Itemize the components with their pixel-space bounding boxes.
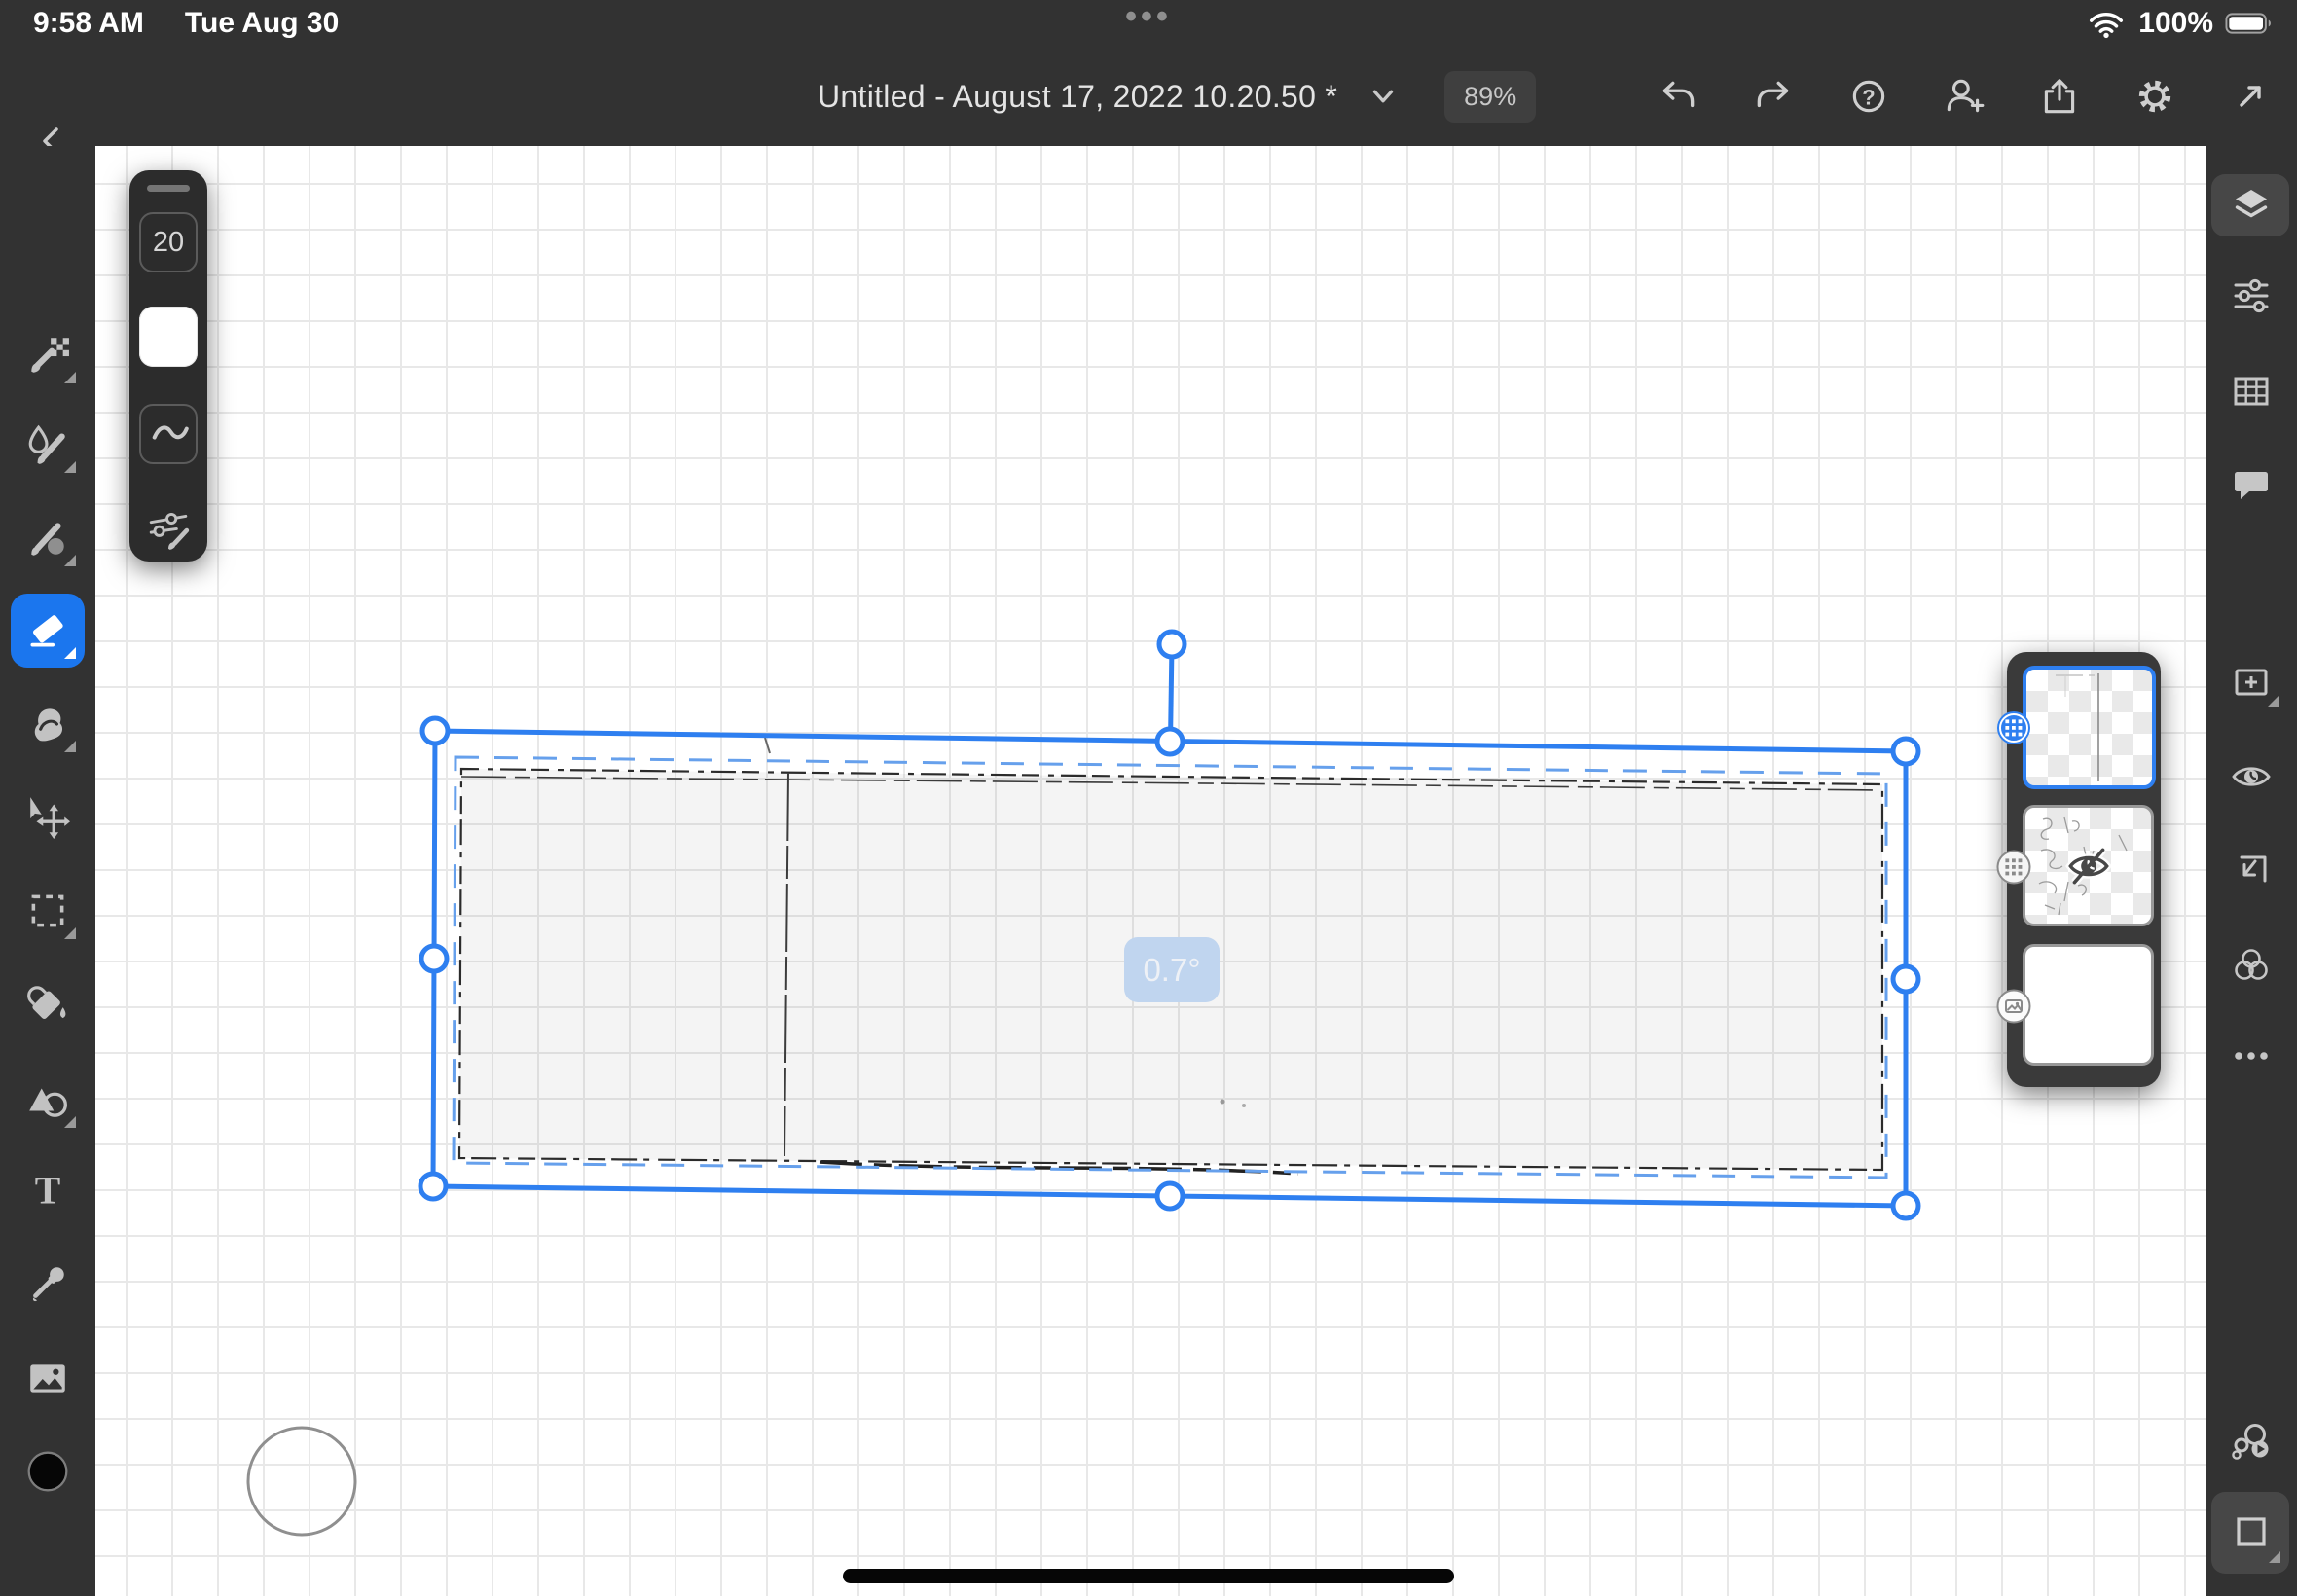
- color-well[interactable]: [11, 1434, 85, 1508]
- flyout-indicator: [64, 741, 76, 752]
- sidebar-item-adjustments[interactable]: [2230, 274, 2273, 317]
- ellipsis-icon: [2230, 1034, 2273, 1077]
- handle-top-left[interactable]: [422, 718, 448, 744]
- document-title: Untitled - August 17, 2022 10.20.50 *: [818, 79, 1337, 115]
- sidebar-item-timelapse[interactable]: [2230, 1420, 2273, 1463]
- help-button[interactable]: ?: [1841, 69, 1896, 124]
- gear-icon: [2133, 74, 2177, 119]
- settings-button[interactable]: [2128, 69, 2182, 124]
- tool-eraser[interactable]: [11, 594, 85, 668]
- background-layer-thumbnail[interactable]: [2023, 944, 2154, 1066]
- tool-options-panel: 20: [129, 170, 207, 562]
- handle-left-mid[interactable]: [421, 946, 447, 971]
- tool-smudge[interactable]: [11, 687, 85, 761]
- tool-sidebar: T: [0, 146, 95, 1596]
- brush-cursor: [248, 1428, 355, 1535]
- status-bar: 9:58 AM Tue Aug 30 ••• 100%: [0, 0, 2297, 47]
- flyout-indicator: [2267, 696, 2279, 707]
- sidebar-item-merge-down[interactable]: [2230, 850, 2273, 892]
- tool-live-brush[interactable]: [11, 408, 85, 482]
- home-indicator[interactable]: [843, 1569, 1454, 1583]
- touch-shortcut-icon: [2230, 1510, 2273, 1553]
- app-screen: 9:58 AM Tue Aug 30 ••• 100% Unt: [0, 0, 2297, 1596]
- adjustments-icon: [2230, 274, 2273, 317]
- wifi-icon: [2086, 7, 2127, 40]
- brush-settings-icon: [146, 507, 191, 552]
- tool-shapes[interactable]: [11, 1063, 85, 1137]
- help-icon: ?: [1846, 74, 1891, 119]
- layers-icon: [2230, 183, 2273, 228]
- timelapse-icon: [2230, 1419, 2273, 1464]
- title-chevron-down-icon[interactable]: [1367, 80, 1400, 113]
- svg-text:0.7°: 0.7°: [1143, 952, 1200, 988]
- tool-fill[interactable]: [11, 967, 85, 1041]
- battery-percent: 100%: [2138, 7, 2213, 40]
- svg-text:?: ?: [1862, 85, 1875, 109]
- layer-hidden-icon[interactable]: [2064, 842, 2113, 890]
- tool-mixer-brush[interactable]: [11, 501, 85, 575]
- sidebar-item-add-layer[interactable]: [2230, 661, 2273, 704]
- blend-circles-icon: [2230, 944, 2273, 987]
- handle-bottom-mid[interactable]: [1157, 1183, 1183, 1209]
- invite-button[interactable]: [1937, 69, 1991, 124]
- color-swatch-icon: [23, 1447, 72, 1496]
- image-icon: [25, 1356, 70, 1400]
- fill-bucket-icon: [25, 982, 70, 1027]
- flyout-indicator: [64, 555, 76, 566]
- layers-panel: [2007, 652, 2161, 1087]
- flyout-indicator: [64, 461, 76, 473]
- battery-icon: [2225, 11, 2276, 36]
- merge-down-icon: [2230, 850, 2273, 892]
- text-tool-icon: T: [25, 1168, 70, 1213]
- background-layer-badge[interactable]: [1996, 989, 2031, 1024]
- sidebar-item-layer-visibility[interactable]: [2230, 755, 2273, 798]
- flyout-indicator: [2269, 1551, 2280, 1563]
- eraser-flow-swatch[interactable]: [139, 307, 198, 367]
- smoothing-button[interactable]: [139, 404, 198, 464]
- sidebar-item-precision-grid[interactable]: [2230, 370, 2273, 413]
- handle-bottom-left[interactable]: [420, 1174, 446, 1199]
- date: Tue Aug 30: [185, 7, 339, 40]
- redo-icon: [1751, 74, 1796, 119]
- layer-1-thumbnail[interactable]: [2023, 666, 2156, 789]
- fullscreen-button[interactable]: [2223, 69, 2278, 124]
- handle-top-right[interactable]: [1893, 739, 1918, 764]
- tool-eyedropper[interactable]: [11, 1247, 85, 1321]
- flyout-indicator: [64, 372, 76, 383]
- tool-marquee-select[interactable]: [11, 874, 85, 948]
- flyout-indicator: [64, 647, 76, 659]
- add-person-icon: [1942, 74, 1987, 119]
- brush-size-value: 20: [153, 227, 184, 259]
- undo-icon: [1656, 74, 1700, 119]
- expand-arrow-icon: [2229, 75, 2272, 118]
- sidebar-item-comments[interactable]: [2230, 463, 2273, 506]
- taskbar-right: [2206, 146, 2297, 1596]
- flyout-indicator: [64, 1116, 76, 1128]
- share-icon: [2037, 74, 2082, 119]
- layer-2-thumbnail[interactable]: [2023, 805, 2154, 926]
- brush-settings-button[interactable]: [139, 499, 198, 560]
- handle-right-mid[interactable]: [1893, 966, 1918, 992]
- layer-1-content: [2026, 670, 2152, 785]
- panel-drag-handle[interactable]: [147, 185, 190, 192]
- rotate-handle[interactable]: [1159, 632, 1185, 657]
- layer-2-pixel-badge[interactable]: [1996, 850, 2031, 885]
- tool-move-transform[interactable]: [11, 780, 85, 853]
- drawing-canvas[interactable]: 0.7°: [95, 146, 2206, 1596]
- selection-overlay: 0.7°: [95, 146, 2206, 1596]
- top-toolbar: Untitled - August 17, 2022 10.20.50 * 89…: [0, 47, 2297, 146]
- redo-button[interactable]: [1746, 69, 1801, 124]
- eye-icon: [2230, 755, 2273, 798]
- clock: 9:58 AM: [33, 7, 144, 40]
- sidebar-item-more-options[interactable]: [2230, 1034, 2273, 1077]
- brush-size-button[interactable]: 20: [139, 212, 198, 272]
- grid-icon: [2230, 370, 2273, 413]
- smoothing-wave-icon: [144, 410, 193, 458]
- share-button[interactable]: [2032, 69, 2087, 124]
- flyout-indicator: [64, 927, 76, 939]
- sidebar-item-touch-shortcut[interactable]: [2230, 1510, 2273, 1553]
- sidebar-item-layers[interactable]: [2230, 184, 2273, 227]
- rotation-badge: 0.7°: [1124, 937, 1220, 1002]
- handle-bottom-right[interactable]: [1893, 1193, 1918, 1218]
- tool-text[interactable]: T: [11, 1153, 85, 1227]
- layer-1-pixel-badge[interactable]: [1996, 710, 2031, 745]
- handle-top-mid[interactable]: [1157, 729, 1183, 754]
- tool-pixel-brush[interactable]: [11, 318, 85, 392]
- multitask-dots[interactable]: •••: [1125, 0, 1172, 36]
- sidebar-item-blend-modes[interactable]: [2230, 944, 2273, 987]
- undo-button[interactable]: [1651, 69, 1705, 124]
- svg-text:T: T: [35, 1170, 61, 1213]
- comment-icon: [2230, 463, 2273, 506]
- tool-place-image[interactable]: [11, 1341, 85, 1415]
- move-transform-icon: [25, 794, 70, 839]
- zoom-level-button[interactable]: 89%: [1444, 71, 1536, 123]
- eyedropper-icon: [25, 1261, 70, 1306]
